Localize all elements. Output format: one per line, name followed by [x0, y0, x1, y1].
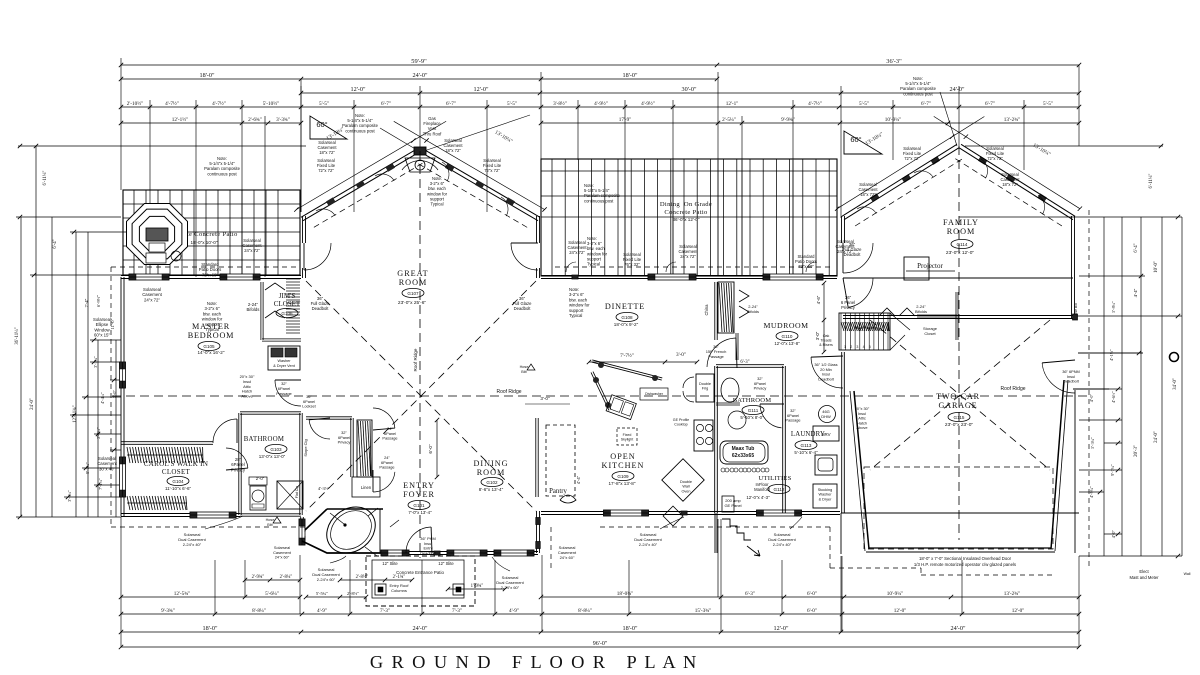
svg-text:23'-0"x 23'-0": 23'-0"x 23'-0": [945, 422, 973, 428]
svg-text:Privacy: Privacy: [231, 467, 246, 472]
svg-text:5'-5": 5'-5": [319, 101, 329, 107]
svg-text:Passage: Passage: [379, 465, 394, 470]
svg-text:6'-7": 6'-7": [921, 101, 931, 107]
svg-text:6'-7": 6'-7": [381, 101, 391, 107]
svg-text:Deadbolt: Deadbolt: [514, 306, 532, 311]
svg-text:5'-10½": 5'-10½": [263, 100, 279, 107]
svg-text:6'-11¼": 6'-11¼": [1149, 173, 1154, 188]
svg-text:8'-8¼": 8'-8¼": [578, 608, 592, 614]
svg-text:Washer: Washer: [278, 359, 292, 363]
svg-text:Skylight: Skylight: [621, 438, 634, 442]
svg-text:HRV: HRV: [821, 432, 830, 437]
svg-text:36'-0"x 12'-0": 36'-0"x 12'-0": [673, 217, 700, 222]
svg-text:Passage: Passage: [785, 418, 800, 423]
svg-text:Dining On Grade: Dining On Grade: [660, 201, 712, 208]
svg-text:2'-8½": 2'-8½": [347, 591, 359, 596]
svg-text:G108: G108: [621, 315, 633, 320]
svg-text:18'-0": 18'-0": [623, 625, 638, 632]
svg-text:6'-7": 6'-7": [985, 101, 995, 107]
svg-text:continuous post: continuous post: [903, 91, 933, 96]
svg-text:30"x 40": 30"x 40": [99, 466, 115, 471]
svg-text:12'-0"x 13'-8": 12'-0"x 13'-8": [774, 341, 800, 346]
svg-text:BATHROOM: BATHROOM: [244, 436, 285, 443]
svg-text:ROOM: ROOM: [947, 227, 976, 236]
svg-text:GE Profile: GE Profile: [673, 418, 689, 422]
svg-text:Maax Tub: Maax Tub: [732, 446, 755, 452]
svg-text:Privacy: Privacy: [754, 386, 767, 391]
svg-text:5'-3¾": 5'-3¾": [1090, 437, 1095, 449]
svg-text:G105: G105: [203, 344, 215, 349]
svg-text:4'-7½": 4'-7½": [165, 100, 179, 107]
svg-text:Frig: Frig: [702, 387, 709, 391]
svg-text:Double: Double: [680, 480, 692, 484]
svg-text:72"x 72": 72"x 72": [987, 156, 1003, 161]
svg-text:Deadbolt: Deadbolt: [420, 550, 436, 555]
svg-text:17'-8"x 13'-8": 17'-8"x 13'-8": [609, 481, 636, 486]
svg-text:4: 4: [863, 345, 865, 349]
svg-text:Bifolds: Bifolds: [915, 309, 927, 314]
svg-text:3'-8½": 3'-8½": [553, 100, 567, 107]
svg-text:G101: G101: [413, 503, 425, 508]
svg-text:4'-0": 4'-0": [1111, 530, 1116, 539]
svg-text:UTILITIES: UTILITIES: [759, 475, 792, 482]
svg-text:FAMILY: FAMILY: [943, 218, 979, 227]
svg-text:60°: 60°: [850, 135, 861, 144]
svg-text:2'-8½": 2'-8½": [356, 575, 369, 580]
svg-text:Stocking: Stocking: [818, 488, 833, 492]
svg-text:7'-4": 7'-4": [84, 298, 89, 307]
svg-text:3'-8¼": 3'-8¼": [67, 490, 72, 502]
svg-text:Washer: Washer: [819, 493, 833, 497]
svg-text:62x33x65: 62x33x65: [732, 453, 754, 459]
svg-text:9'-7¾": 9'-7¾": [1110, 464, 1115, 476]
svg-text:2'-6¾": 2'-6¾": [248, 116, 262, 123]
svg-text:Closet: Closet: [924, 331, 936, 336]
svg-text:Passage: Passage: [382, 436, 397, 441]
svg-text:12'-11¾": 12'-11¾": [73, 405, 78, 422]
svg-text:continuous post: continuous post: [584, 198, 614, 203]
svg-text:2-24"x 40": 2-24"x 40": [639, 542, 658, 547]
svg-text:2'-1¾": 2'-1¾": [393, 575, 406, 580]
svg-text:4'-9½": 4'-9½": [594, 100, 608, 107]
svg-text:Elect: Elect: [1139, 569, 1149, 574]
svg-text:18"x 72": 18"x 72": [445, 148, 461, 153]
svg-text:Typical: Typical: [587, 262, 600, 267]
svg-text:& Dryer Vent: & Dryer Vent: [273, 364, 295, 368]
svg-text:ENTRY: ENTRY: [403, 481, 435, 490]
svg-text:18"x 72": 18"x 72": [860, 192, 876, 197]
svg-text:4'-7½": 4'-7½": [212, 100, 226, 107]
svg-text:2-24"x 60": 2-24"x 60": [317, 577, 336, 582]
svg-text:G110: G110: [782, 334, 793, 339]
svg-text:8'-8¼": 8'-8¼": [252, 608, 266, 614]
svg-text:Fixed: Fixed: [623, 433, 632, 437]
svg-text:23'-0"x 25'-6": 23'-0"x 25'-6": [398, 300, 426, 306]
svg-text:23'-0"x 12'-0": 23'-0"x 12'-0": [946, 250, 974, 256]
svg-text:5'-5": 5'-5": [1043, 101, 1053, 107]
svg-text:Double: Double: [699, 382, 711, 386]
svg-text:Hose: Hose: [266, 518, 275, 522]
svg-text:18'-0": 18'-0": [203, 625, 218, 632]
svg-text:G111: G111: [748, 408, 759, 413]
svg-text:continuous post: continuous post: [345, 128, 375, 133]
svg-text:2'-0": 2'-0": [112, 390, 117, 399]
svg-text:2: 2: [850, 345, 852, 349]
svg-text:3'-0": 3'-0": [540, 396, 550, 401]
svg-text:Thru Roof: Thru Roof: [423, 131, 442, 136]
svg-text:36'-11¼": 36'-11¼": [15, 327, 20, 344]
svg-text:6'-0": 6'-0": [807, 591, 817, 597]
svg-text:24"x 72": 24"x 72": [244, 248, 260, 253]
svg-text:5'-8¼": 5'-8¼": [1111, 301, 1116, 313]
svg-text:Roof Ridge: Roof Ridge: [413, 348, 418, 371]
svg-text:5'-10"x 6'-4": 5'-10"x 6'-4": [794, 450, 818, 455]
svg-text:MUDROOM: MUDROOM: [763, 321, 808, 330]
svg-text:60"x 15": 60"x 15": [94, 333, 110, 338]
svg-text:Lockset: Lockset: [302, 404, 316, 409]
svg-text:24"x 60": 24"x 60": [275, 555, 290, 560]
svg-text:DINETTE: DINETTE: [605, 302, 645, 311]
svg-text:Treads: Treads: [820, 339, 831, 343]
svg-text:MASTER: MASTER: [192, 322, 230, 331]
svg-text:2-24"x 60": 2-24"x 60": [501, 585, 520, 590]
svg-text:7'-0"x 13'-4": 7'-0"x 13'-4": [408, 510, 432, 515]
svg-text:24'-0": 24'-0": [951, 625, 966, 632]
svg-text:24"x 60": 24"x 60": [560, 555, 575, 560]
svg-text:Oak: Oak: [823, 334, 830, 338]
svg-text:6'-7": 6'-7": [446, 101, 456, 107]
svg-text:JIM'S: JIM'S: [279, 292, 296, 300]
svg-text:G115: G115: [954, 415, 965, 420]
svg-text:Hose: Hose: [520, 365, 529, 369]
svg-text:Passage: Passage: [708, 354, 724, 359]
svg-text:4'-4": 4'-4": [1133, 288, 1138, 297]
svg-text:6'-9½": 6'-9½": [96, 295, 101, 307]
svg-text:Deadbolt: Deadbolt: [818, 376, 834, 381]
svg-text:2'-10½": 2'-10½": [127, 100, 143, 107]
svg-text:8'-6"x 13'-4": 8'-6"x 13'-4": [479, 487, 504, 492]
svg-text:5'-5": 5'-5": [507, 101, 517, 107]
svg-text:12'-5¾": 12'-5¾": [174, 590, 190, 597]
svg-text:Dishwasher: Dishwasher: [645, 392, 664, 396]
svg-text:Wall: Wall: [682, 485, 689, 489]
svg-text:Flat Clg: Flat Clg: [295, 486, 299, 498]
svg-text:5: 5: [869, 345, 871, 349]
svg-text:18'-0"x 10'-0": 18'-0"x 10'-0": [191, 240, 218, 245]
svg-text:& Risers: & Risers: [819, 343, 833, 347]
svg-text:60°: 60°: [316, 120, 327, 129]
svg-text:Typical: Typical: [569, 313, 582, 318]
svg-text:4'-9¾": 4'-9¾": [1089, 486, 1094, 498]
svg-text:CLOSET: CLOSET: [274, 300, 301, 308]
svg-text:2'-9¾": 2'-9¾": [252, 575, 265, 580]
svg-text:BEDROOM: BEDROOM: [188, 331, 235, 340]
svg-text:Typical: Typical: [430, 202, 443, 207]
svg-text:12'-0": 12'-0": [351, 86, 366, 93]
svg-text:59'-9": 59'-9": [411, 58, 427, 65]
svg-text:Deadbolt: Deadbolt: [844, 252, 862, 257]
svg-text:18"x 72": 18"x 72": [319, 150, 335, 155]
svg-text:7'-7½": 7'-7½": [620, 352, 634, 359]
svg-text:4'-0": 4'-0": [1089, 394, 1094, 403]
svg-text:Linen: Linen: [361, 485, 372, 490]
svg-text:12" Slite: 12" Slite: [382, 561, 398, 566]
svg-text:G107: G107: [407, 291, 419, 296]
svg-text:Deadbolt: Deadbolt: [312, 306, 330, 311]
svg-text:24'-0": 24'-0": [413, 72, 428, 79]
svg-text:10'-9¼": 10'-9¼": [887, 591, 903, 597]
svg-text:12'-0": 12'-0": [774, 625, 789, 632]
svg-text:2-24"x 40": 2-24"x 40": [773, 542, 792, 547]
svg-text:3'-0": 3'-0": [815, 331, 820, 340]
svg-text:G112: G112: [774, 487, 785, 492]
svg-text:4'-6": 4'-6": [816, 295, 821, 304]
svg-text:12'-0": 12'-0": [474, 86, 489, 93]
svg-text:12'-0"x 4'-3": 12'-0"x 4'-3": [746, 495, 770, 500]
svg-text:15'-3¾": 15'-3¾": [695, 607, 711, 614]
svg-text:6'-0": 6'-0": [428, 444, 433, 454]
svg-text:6'-0": 6'-0": [807, 608, 817, 614]
svg-text:7'-3": 7'-3": [380, 608, 390, 614]
svg-text:G106: G106: [281, 311, 293, 316]
svg-text:CAROL'S WALK IN: CAROL'S WALK IN: [144, 460, 208, 468]
svg-text:24'-0": 24'-0": [950, 86, 965, 93]
svg-text:12'-1": 12'-1": [726, 101, 739, 107]
svg-text:Bifolds: Bifolds: [747, 309, 759, 314]
svg-text:GE Panel: GE Panel: [724, 503, 741, 508]
svg-text:76"x 32": 76"x 32": [624, 262, 640, 267]
svg-text:20'-3": 20'-3": [1134, 445, 1139, 457]
svg-text:1/3 H.P. remote motorized oper: 1/3 H.P. remote motorized operator c/w g…: [914, 562, 1016, 567]
svg-text:2'-8¼": 2'-8¼": [280, 575, 293, 580]
svg-text:Wall Railing: Wall Railing: [855, 326, 877, 330]
svg-text:3'-0": 3'-0": [676, 352, 686, 358]
svg-text:6'-4": 6'-4": [1134, 243, 1139, 252]
svg-text:ROOM: ROOM: [477, 468, 506, 477]
svg-text:5'-10"x 8'-0": 5'-10"x 8'-0": [740, 415, 764, 420]
svg-text:6'-11¼": 6'-11¼": [43, 170, 48, 185]
svg-text:Roof Ridge: Roof Ridge: [1000, 386, 1025, 392]
svg-text:5'-6¼": 5'-6¼": [265, 591, 279, 597]
svg-text:G114: G114: [957, 242, 968, 247]
svg-text:1'-9¾": 1'-9¾": [471, 584, 484, 589]
svg-text:G R O U N D F L O O R P L: G R O U N D F L O O R P L A N: [370, 652, 698, 672]
svg-text:3'-3¾": 3'-3¾": [93, 356, 98, 368]
svg-text:24"x 72": 24"x 72": [144, 297, 160, 302]
svg-text:GARAGE: GARAGE: [939, 401, 978, 410]
svg-text:GREAT: GREAT: [397, 269, 428, 278]
svg-text:14'-0"x 16'-2": 14'-0"x 16'-2": [198, 350, 225, 355]
svg-text:Projector: Projector: [917, 262, 943, 270]
svg-text:10'-0": 10'-0": [1154, 261, 1159, 273]
svg-text:2'-5¼": 2'-5¼": [722, 117, 736, 123]
svg-text:OPEN: OPEN: [610, 452, 635, 461]
svg-text:18'-0" x 7'-0" Sectional Insul: 18'-0" x 7'-0" Sectional Insulated Overh…: [919, 556, 1012, 561]
svg-text:Concrete Entrance Patio: Concrete Entrance Patio: [396, 570, 444, 575]
svg-text:Oven: Oven: [681, 489, 690, 493]
svg-text:& Dryer: & Dryer: [819, 497, 833, 501]
svg-text:G102: G102: [486, 480, 498, 485]
svg-text:72"x 72": 72"x 72": [904, 156, 920, 161]
svg-text:2-24"x 40": 2-24"x 40": [183, 542, 202, 547]
svg-text:Concrete Patio: Concrete Patio: [664, 209, 708, 216]
svg-text:China: China: [704, 304, 709, 316]
svg-text:18'-0": 18'-0": [623, 72, 638, 79]
svg-text:24"x 72": 24"x 72": [569, 250, 585, 255]
svg-text:72"x 72": 72"x 72": [318, 168, 334, 173]
svg-text:9'-3¾": 9'-3¾": [161, 607, 175, 614]
svg-text:Pantry: Pantry: [549, 488, 567, 495]
svg-text:FOYER: FOYER: [403, 490, 435, 499]
svg-text:Slope Clg: Slope Clg: [303, 439, 308, 456]
svg-text:DHW: DHW: [821, 414, 831, 419]
svg-text:4'-6½": 4'-6½": [1111, 391, 1116, 403]
svg-text:6'-4": 6'-4": [53, 239, 58, 248]
svg-text:72"x 72": 72"x 72": [484, 168, 500, 173]
svg-text:13'-2¾": 13'-2¾": [1004, 116, 1020, 123]
svg-text:36'-3": 36'-3": [886, 58, 902, 65]
svg-text:LAUNDRY: LAUNDRY: [791, 431, 825, 438]
svg-text:Bib: Bib: [267, 523, 273, 527]
svg-text:5'-5¾": 5'-5¾": [316, 591, 328, 596]
svg-text:4'-9½": 4'-9½": [641, 100, 655, 107]
svg-text:24'-0": 24'-0": [30, 398, 35, 410]
svg-text:7'-3": 7'-3": [452, 608, 462, 614]
svg-text:12'-1½": 12'-1½": [172, 116, 188, 123]
svg-text:24"x 72": 24"x 72": [680, 254, 696, 259]
svg-text:3'-3¾": 3'-3¾": [276, 116, 290, 123]
svg-text:Roof Ridge: Roof Ridge: [496, 389, 521, 395]
svg-text:4'-9": 4'-9": [317, 608, 327, 614]
svg-text:BATHROOM: BATHROOM: [733, 397, 772, 404]
svg-text:Wall: Wall: [1184, 572, 1191, 576]
svg-text:Mast and Meter: Mast and Meter: [1129, 575, 1159, 580]
svg-text:4'-3½": 4'-3½": [318, 486, 330, 491]
svg-text:4'-7½": 4'-7½": [808, 100, 822, 107]
svg-text:G109: G109: [617, 474, 629, 479]
svg-text:72"x 60": 72"x 60": [202, 272, 218, 277]
svg-text:Deadbolt: Deadbolt: [1063, 379, 1079, 384]
svg-text:4'-9": 4'-9": [509, 608, 519, 614]
svg-text:CLOSET: CLOSET: [162, 468, 191, 476]
svg-text:4'-4": 4'-4": [576, 475, 581, 484]
svg-text:Columns: Columns: [391, 588, 407, 593]
svg-text:11'-10"x 6'-6": 11'-10"x 6'-6": [165, 486, 191, 491]
svg-text:18"x 72": 18"x 72": [1002, 182, 1018, 187]
svg-text:24'-0": 24'-0": [1154, 431, 1159, 443]
svg-text:18'-0": 18'-0": [200, 72, 215, 79]
svg-text:continuous post: continuous post: [207, 171, 237, 176]
svg-text:G103: G103: [270, 447, 282, 452]
svg-text:1: 1: [844, 345, 846, 349]
svg-text:13'-2¾": 13'-2¾": [1004, 590, 1020, 597]
svg-text:Privacy: Privacy: [338, 440, 351, 445]
svg-text:7'-1¼": 7'-1¼": [98, 478, 103, 490]
svg-text:2'-5¼": 2'-5¼": [96, 427, 101, 439]
svg-text:Bifolds: Bifolds: [247, 307, 260, 312]
svg-text:KITCHEN: KITCHEN: [602, 461, 645, 470]
svg-text:DINING: DINING: [473, 459, 508, 468]
svg-text:30'-0": 30'-0": [682, 86, 697, 93]
svg-text:6'-3": 6'-3": [745, 591, 755, 597]
svg-text:5'-5": 5'-5": [859, 101, 869, 107]
svg-text:13'-0"x 13'-0": 13'-0"x 13'-0": [259, 454, 286, 459]
svg-text:4'-4¼": 4'-4¼": [100, 392, 105, 404]
svg-text:12'-0": 12'-0": [1012, 608, 1025, 614]
svg-text:12'-0": 12'-0": [894, 608, 907, 614]
svg-text:96'-0": 96'-0": [593, 641, 608, 647]
svg-text:34'-0": 34'-0": [1173, 378, 1178, 390]
svg-text:9'-7¾": 9'-7¾": [85, 462, 90, 474]
svg-text:18'-0¾": 18'-0¾": [617, 590, 633, 597]
svg-text:G113: G113: [801, 443, 812, 448]
svg-text:18'-0"x 9'-2": 18'-0"x 9'-2": [614, 322, 639, 327]
svg-text:ROOM: ROOM: [399, 278, 428, 287]
svg-text:4'-1½": 4'-1½": [1109, 349, 1114, 361]
svg-text:Bib: Bib: [521, 370, 527, 374]
svg-text:12" Slite: 12" Slite: [438, 561, 454, 566]
svg-text:G104: G104: [172, 479, 184, 484]
svg-text:24'-0": 24'-0": [413, 625, 428, 632]
svg-text:Cooktop: Cooktop: [674, 423, 687, 427]
svg-text:3: 3: [856, 345, 858, 349]
